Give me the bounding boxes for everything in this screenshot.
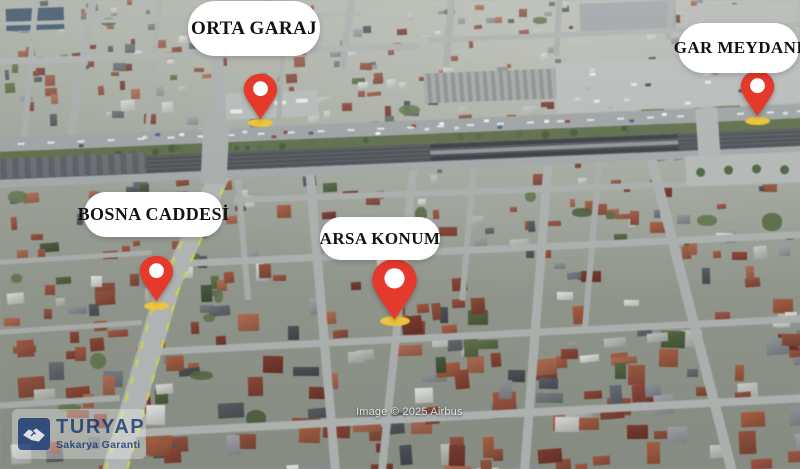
level-crossing xyxy=(695,107,721,160)
map-pin-orta-garaj-icon xyxy=(242,68,279,126)
tree xyxy=(780,165,789,174)
level-crossing xyxy=(200,119,229,184)
map-pin-bosna-caddesi-icon xyxy=(138,250,175,308)
map-pin-arsa-konum-icon xyxy=(368,258,421,322)
brand-tagline: Sakarya Garanti xyxy=(56,439,145,451)
imagery-attribution: Image © 2025 Airbus xyxy=(356,406,463,418)
handshake-icon xyxy=(18,418,50,450)
turyap-logo: TURYAP Sakarya Garanti xyxy=(12,409,146,459)
tree xyxy=(752,164,761,173)
label-bosna-caddesi: BOSNA CADDESİ xyxy=(84,192,223,237)
tree xyxy=(724,166,733,175)
station-plaza xyxy=(685,152,800,187)
brand-name: TURYAP xyxy=(56,417,145,437)
listing-image: Image © 2025 Airbus ORTA GARAJ GAR MEYDA… xyxy=(0,0,800,469)
label-gar-meydani: GAR MEYDANI xyxy=(678,23,799,73)
label-orta-garaj: ORTA GARAJ xyxy=(188,1,320,56)
tree xyxy=(696,167,705,176)
label-arsa-konum: ARSA KONUM xyxy=(320,217,440,260)
map-pin-gar-meydani-icon xyxy=(739,65,776,123)
